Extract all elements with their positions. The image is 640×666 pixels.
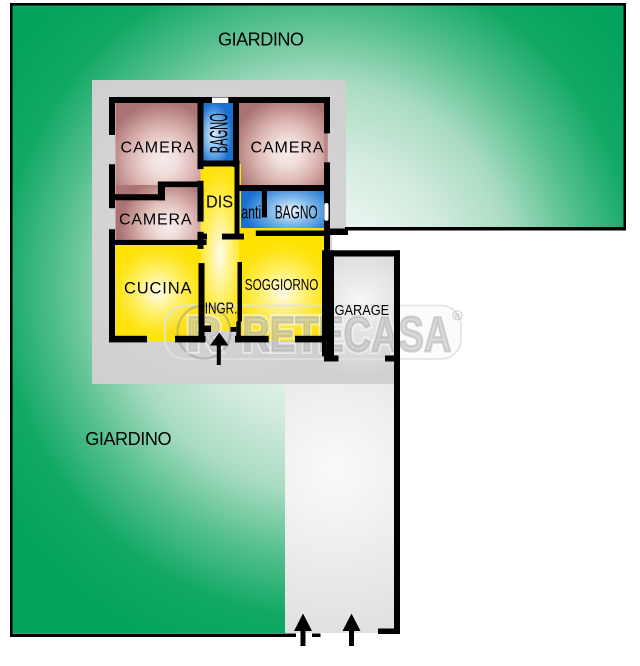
svg-text:CAMERA: CAMERA xyxy=(251,140,324,157)
svg-text:GARAGE: GARAGE xyxy=(335,302,390,319)
svg-text:CAMERA: CAMERA xyxy=(119,212,192,229)
svg-text:GIARDINO: GIARDINO xyxy=(85,429,171,449)
svg-text:BAGNO: BAGNO xyxy=(275,202,318,223)
svg-text:INGR.: INGR. xyxy=(205,301,238,318)
svg-text:GIARDINO: GIARDINO xyxy=(218,29,304,49)
svg-text:CUCINA: CUCINA xyxy=(124,280,192,298)
svg-text:DIS: DIS xyxy=(206,192,233,212)
svg-text:CAMERA: CAMERA xyxy=(121,140,195,157)
svg-text:BAGNO: BAGNO xyxy=(206,113,234,153)
svg-text:R: R xyxy=(455,313,460,320)
svg-text:anti: anti xyxy=(241,202,261,223)
svg-text:SOGGIORNO: SOGGIORNO xyxy=(245,277,319,294)
